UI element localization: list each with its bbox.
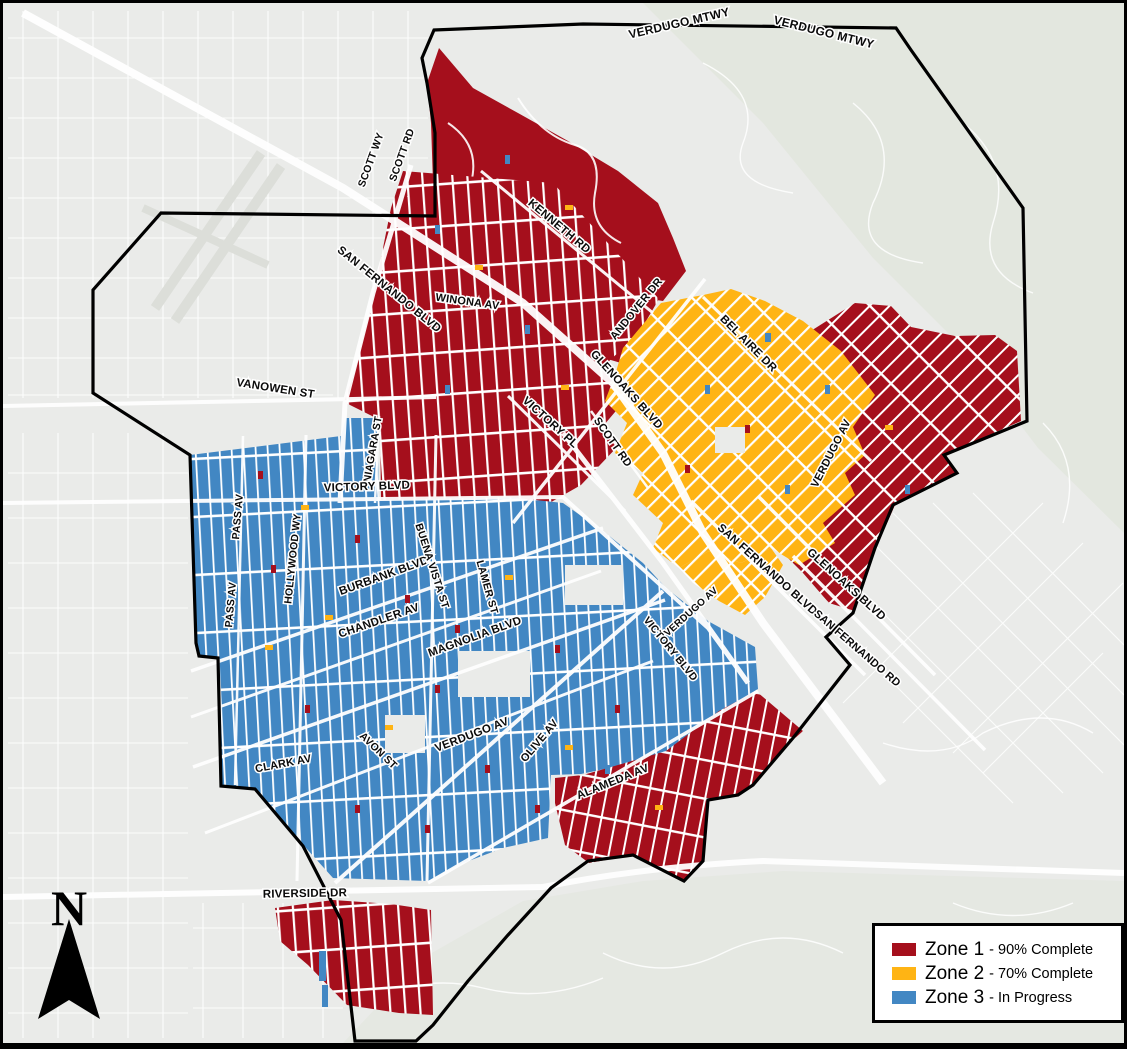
zone2-label: Zone 2 [925, 964, 984, 983]
zone1-label: Zone 1 [925, 940, 984, 959]
map-screenshot: VERDUGO MTWY VERDUGO MTWY SCOTT WY SCOTT… [0, 0, 1127, 1049]
zone3-status: - In Progress [989, 989, 1072, 1006]
zone2-status: - 70% Complete [989, 965, 1093, 982]
street-label-riverside-dr: RIVERSIDE DR [263, 887, 348, 900]
zone3-sliver [319, 951, 326, 981]
zone1-status: - 90% Complete [989, 941, 1093, 958]
legend-row-zone2: Zone 2 - 70% Complete [892, 964, 1121, 983]
map-canvas: VERDUGO MTWY VERDUGO MTWY SCOTT WY SCOTT… [3, 3, 1124, 1043]
zone3-swatch [892, 991, 916, 1004]
zone2-swatch [892, 967, 916, 980]
zone3-sliver [322, 985, 328, 1007]
zone1-swatch [892, 943, 916, 956]
legend-row-zone3: Zone 3 - In Progress [892, 988, 1121, 1007]
legend-row-zone1: Zone 1 - 90% Complete [892, 940, 1121, 959]
zone3-label: Zone 3 [925, 988, 984, 1007]
legend: Zone 1 - 90% Complete Zone 2 - 70% Compl… [872, 923, 1124, 1023]
